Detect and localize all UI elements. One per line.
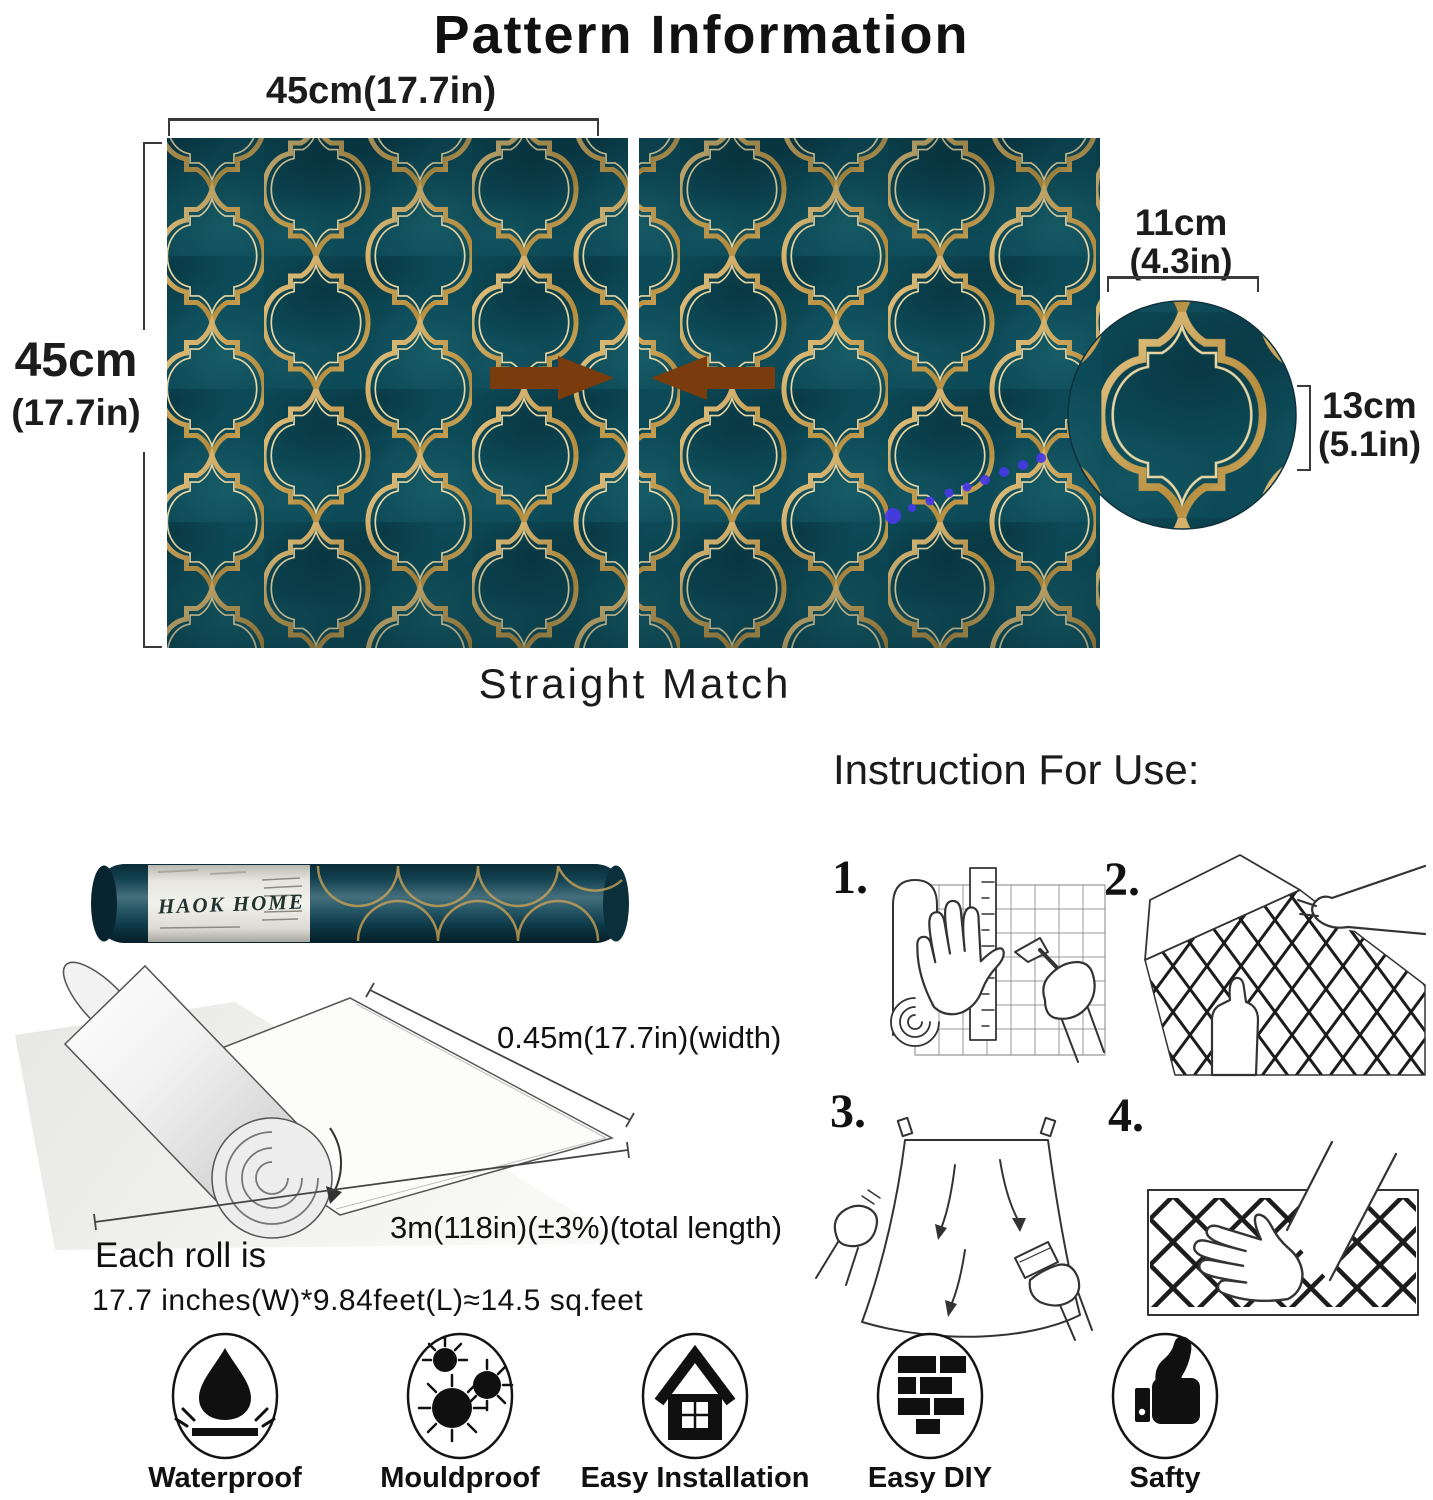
- feature-icon-safty: [1113, 1334, 1217, 1458]
- top-width-bracket: [168, 118, 599, 136]
- detail-height-label-cm: 13cm: [1322, 385, 1417, 427]
- pin-left: [898, 1118, 912, 1136]
- step-4-number: 4.: [1108, 1088, 1144, 1143]
- left-height-label-in: (17.7in): [0, 392, 152, 434]
- step-3-illustration: [816, 1118, 1092, 1340]
- step-4-illustration: [1148, 1142, 1418, 1315]
- product-infographic: Pattern Information 45cm(17.7in) 45cm (1…: [0, 0, 1433, 1500]
- wallpaper-panel-right: [639, 138, 1100, 648]
- step-1-number: 1.: [832, 850, 868, 905]
- feature-icon-mouldproof: [408, 1334, 512, 1458]
- feature-label-easy-diy: Easy DIY: [832, 1462, 1028, 1495]
- roll-width-label: 0.45m(17.7in)(width): [497, 1020, 781, 1056]
- unrolled-roll-diagram: [15, 951, 634, 1250]
- left-height-bracket-bottom: [143, 452, 162, 648]
- feature-label-waterproof: Waterproof: [115, 1462, 335, 1495]
- feature-icon-easy-diy: [878, 1334, 982, 1458]
- step-1-illustration: [891, 868, 1105, 1062]
- feature-icon-waterproof: [173, 1334, 277, 1458]
- detail-height-label-in: (5.1in): [1318, 425, 1421, 465]
- top-width-label: 45cm(17.7in): [166, 70, 596, 113]
- left-height-label-cm: 45cm: [0, 336, 152, 386]
- roll-length-label: 3m(118in)(±3%)(total length): [390, 1210, 782, 1246]
- step-2-number: 2.: [1104, 852, 1140, 907]
- pin-right: [1041, 1118, 1055, 1136]
- detail-height-bracket: [1297, 385, 1311, 471]
- feature-label-easy-installation: Easy Installation: [560, 1462, 830, 1495]
- step-2-illustration: [1145, 855, 1425, 1075]
- cutter-knife: [1015, 938, 1048, 962]
- tube-brand-label: HAOK HOME: [158, 889, 306, 919]
- instructions-heading: Instruction For Use:: [833, 746, 1199, 794]
- hand-holding-knife: [1043, 962, 1094, 1019]
- detail-width-label-cm: 11cm: [1105, 202, 1257, 244]
- page-title: Pattern Information: [0, 4, 1403, 66]
- hand-holding-edge: [835, 1206, 877, 1246]
- pattern-detail-circle: [1068, 301, 1296, 529]
- step-3-number: 3.: [830, 1084, 866, 1139]
- left-height-bracket-top: [143, 142, 162, 330]
- detail-width-bracket: [1107, 276, 1259, 292]
- match-type-label: Straight Match: [320, 660, 950, 708]
- feature-icon-easy-installation: [643, 1334, 747, 1458]
- each-roll-line2: 17.7 inches(W)*9.84feet(L)≈14.5 sq.feet: [92, 1284, 643, 1318]
- feature-label-mouldproof: Mouldproof: [350, 1462, 570, 1495]
- each-roll-line1: Each roll is: [95, 1236, 266, 1276]
- feature-label-safty: Safty: [1065, 1462, 1265, 1495]
